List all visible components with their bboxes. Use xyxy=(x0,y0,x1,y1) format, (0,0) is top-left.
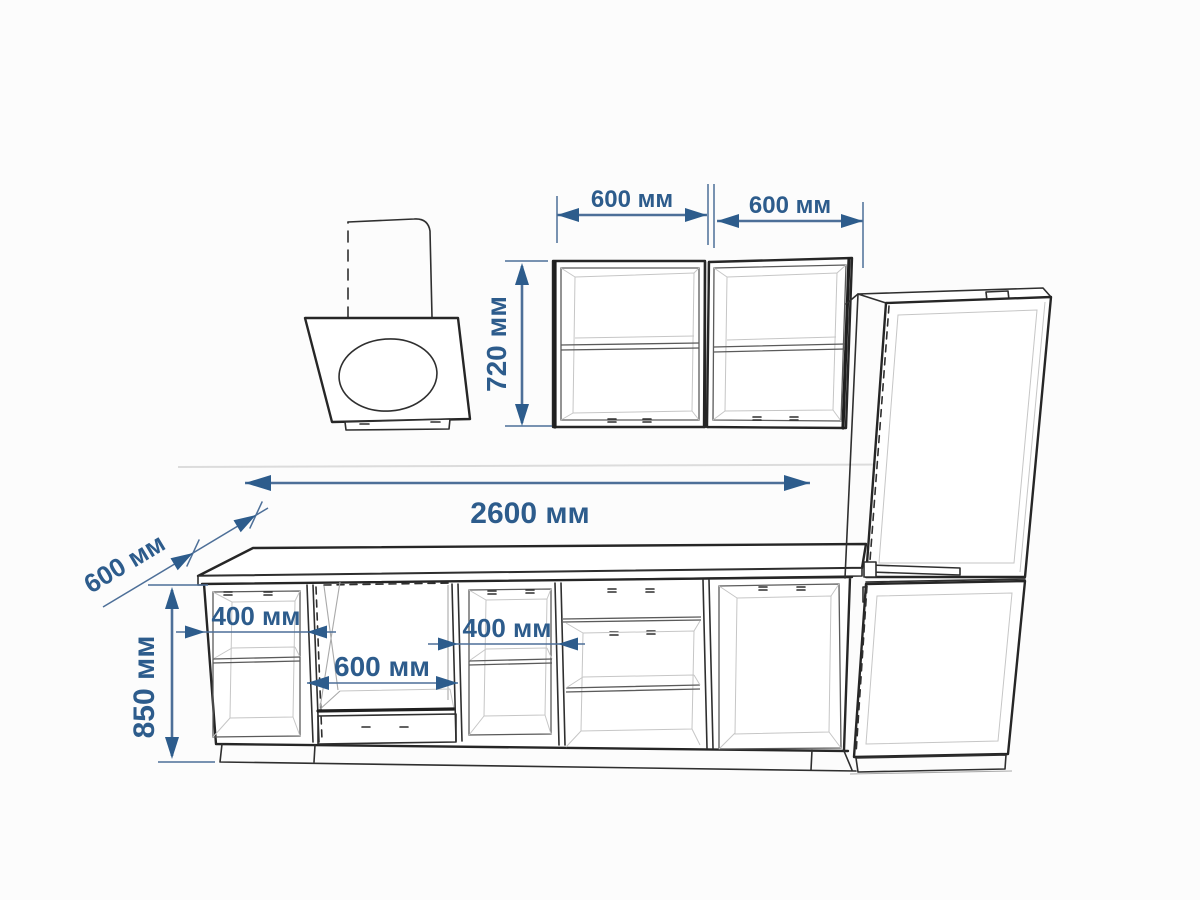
range-hood xyxy=(305,219,470,430)
arrowhead-down xyxy=(515,404,529,426)
arrowhead-down xyxy=(165,737,179,759)
dimension-label: 400 мм xyxy=(462,613,551,643)
wall-cabinets xyxy=(553,258,852,428)
refrigerator xyxy=(845,288,1051,774)
fridge-base-kick xyxy=(856,755,1006,772)
dimension-wall-cabinet-height: 720 мм xyxy=(481,261,552,426)
dimension-label: 720 мм xyxy=(481,296,512,392)
dimension-label: 600 мм xyxy=(334,651,430,682)
hood-body xyxy=(305,318,470,422)
arrowhead-left xyxy=(557,208,579,222)
fridge-handle-mount xyxy=(864,562,876,577)
dimension-countertop-length: 2600 мм xyxy=(245,475,810,530)
arrowhead-right xyxy=(841,214,863,228)
arrowhead-inward-right xyxy=(185,626,205,639)
dimension-label: 600 мм xyxy=(78,527,170,599)
dimension-label: 600 мм xyxy=(591,186,673,213)
dimension-label: 600 мм xyxy=(749,192,831,219)
arrowhead-right xyxy=(685,208,707,222)
niche-bottom-edge xyxy=(318,709,454,711)
dimension-label: 850 мм xyxy=(128,636,161,739)
dimension-base-height: 850 мм xyxy=(128,585,215,762)
dimension-wall-cabinet-left-width: 600 мм xyxy=(557,184,708,245)
diagram-canvas: 600 мм 600 мм 720 мм 2600 мм 600 мм xyxy=(0,0,1200,900)
dimension-label: 400 мм xyxy=(211,601,300,631)
arrowhead-up xyxy=(165,587,179,609)
arrowhead-right xyxy=(784,475,810,491)
arrowhead-left xyxy=(245,475,271,491)
hood-duct-outline xyxy=(348,219,432,317)
arrowhead-up xyxy=(515,263,529,285)
wall-cabinet-right-carcass xyxy=(707,258,852,428)
dimension-wall-cabinet-right-width: 600 мм xyxy=(714,184,863,268)
dimension-label: 2600 мм xyxy=(470,497,589,530)
kitchen-dimension-diagram: 600 мм 600 мм 720 мм 2600 мм 600 мм xyxy=(0,0,1200,900)
extension-ticks xyxy=(505,261,552,426)
wall-cabinet-right xyxy=(707,258,852,428)
wall-cabinet-left xyxy=(553,261,705,427)
arrowhead-left xyxy=(717,214,739,228)
